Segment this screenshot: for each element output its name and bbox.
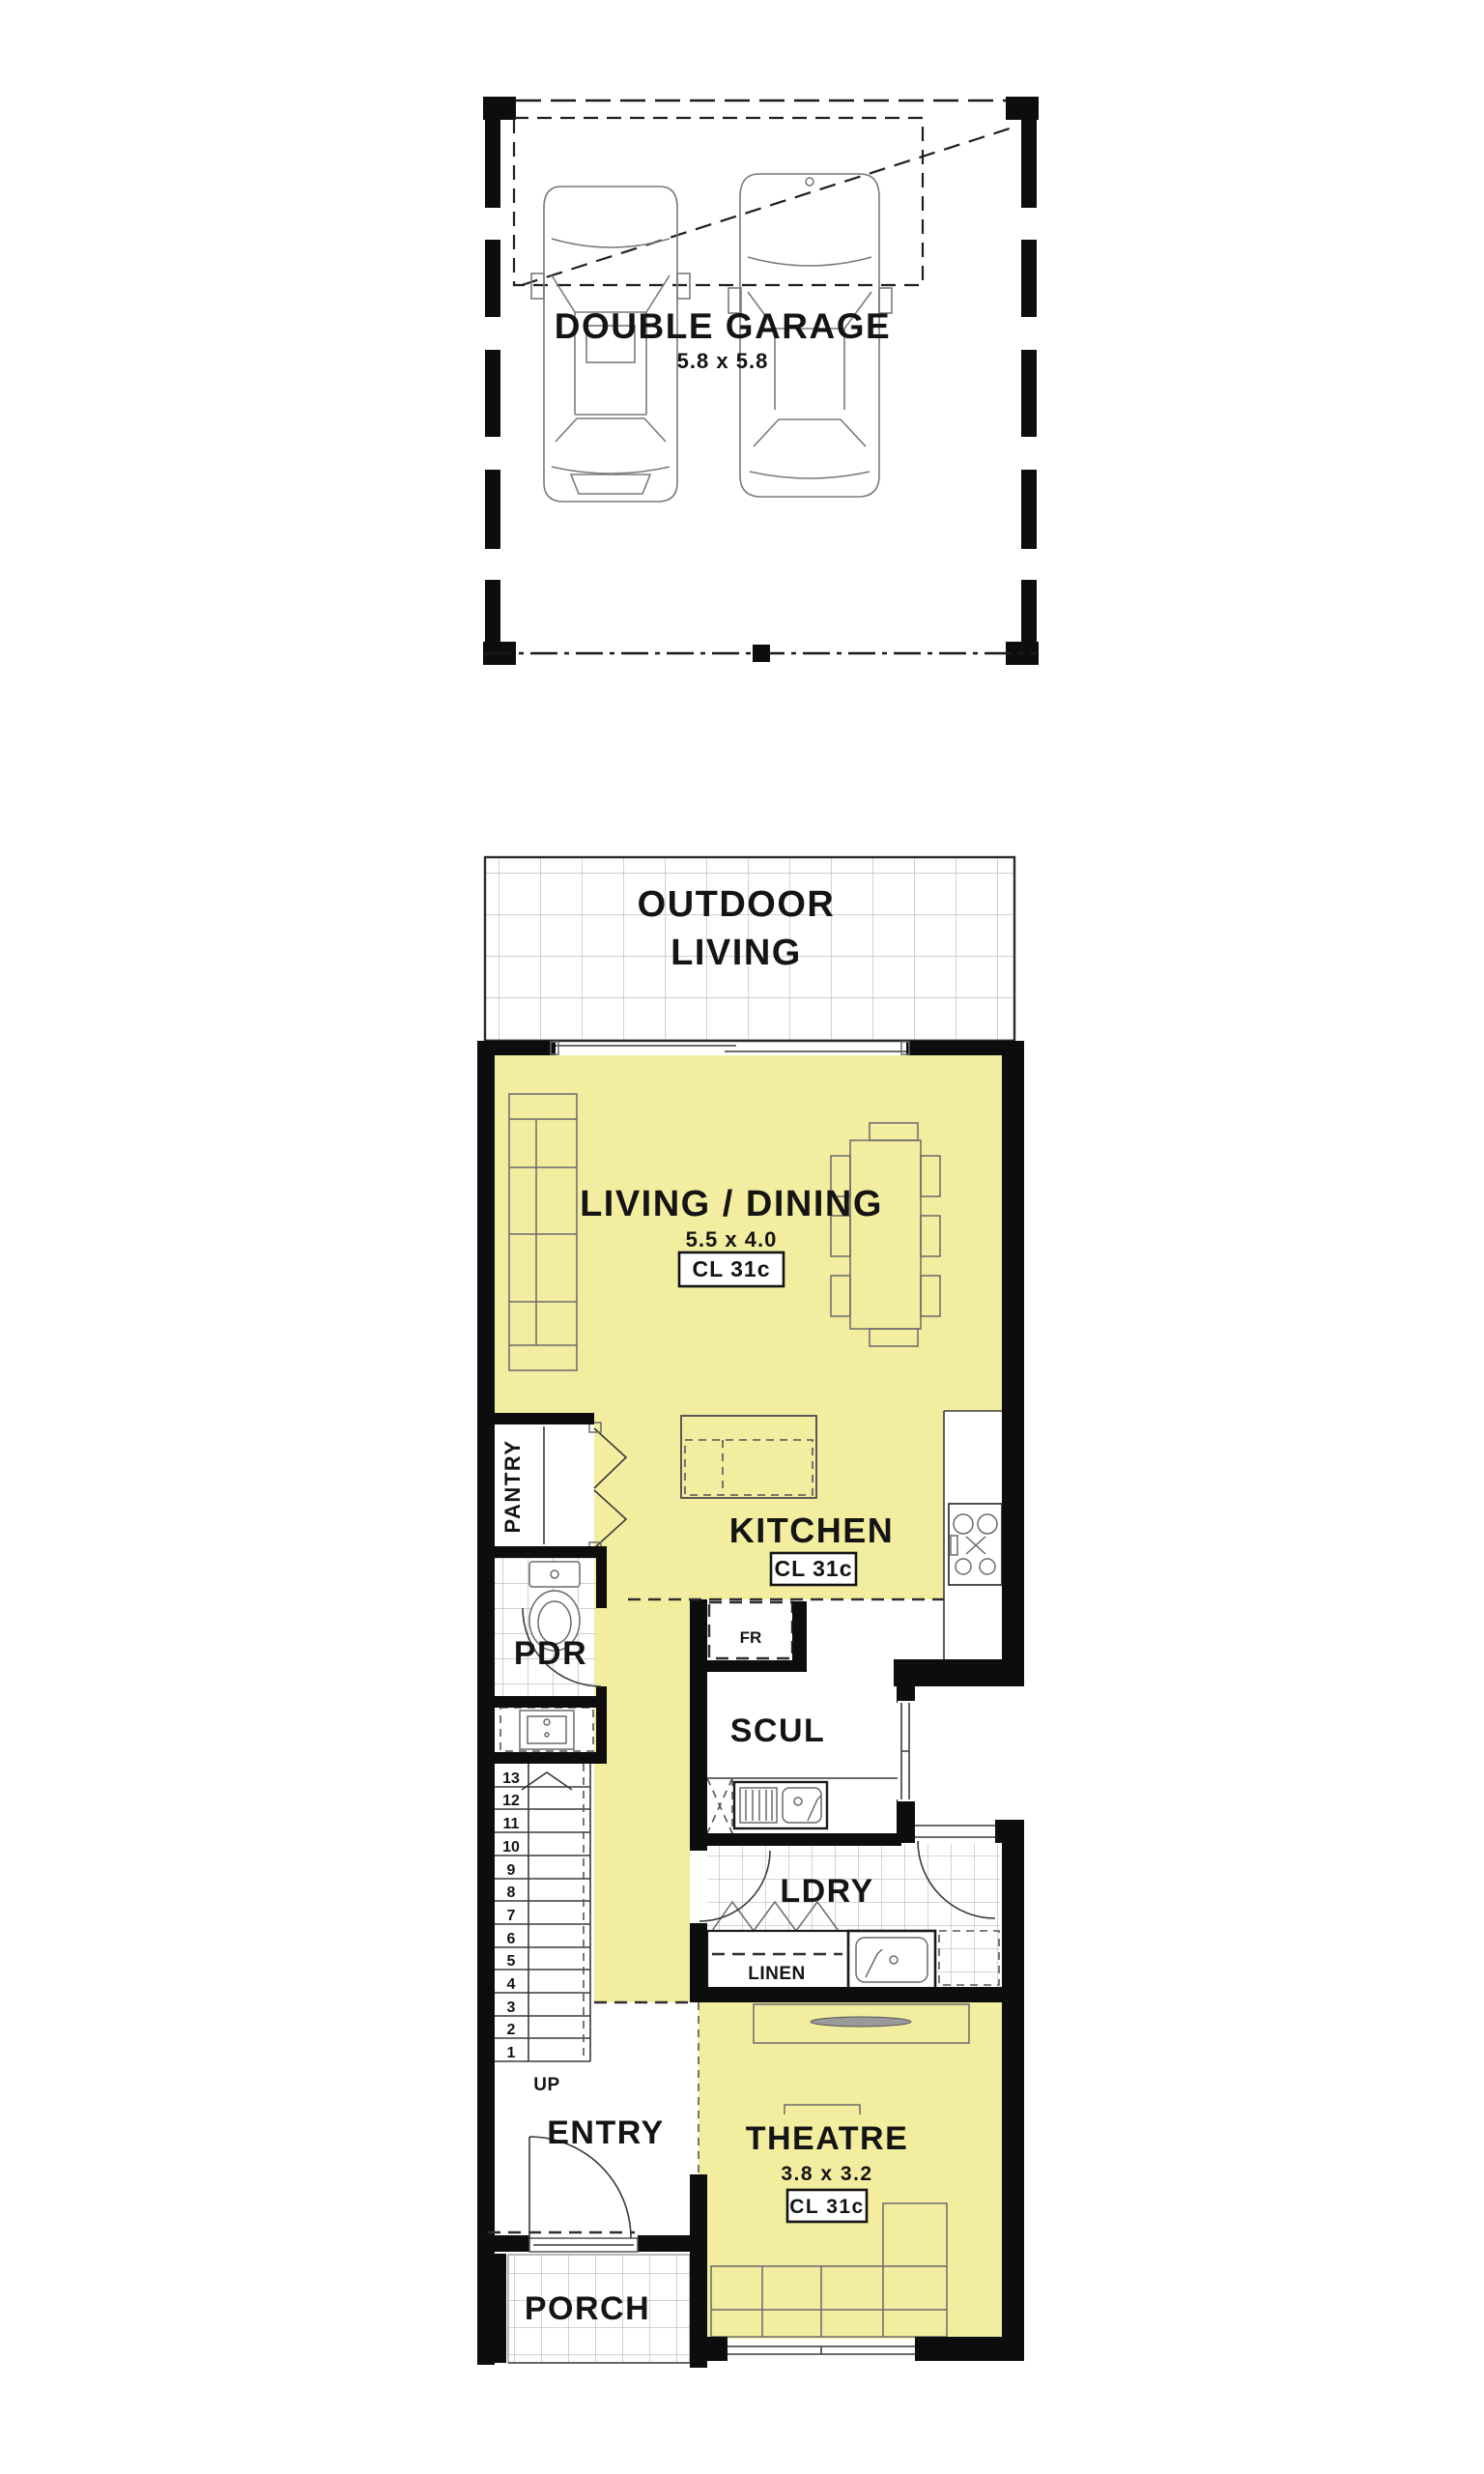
porch-label: PORCH	[525, 2290, 650, 2327]
scul-window	[898, 1701, 915, 1801]
stair-number: 4	[507, 1976, 516, 1993]
theatre-label: THEATRE	[746, 2120, 909, 2157]
outdoor-living-label-line2: LIVING	[671, 933, 802, 973]
living-dining-cl: CL 31c	[692, 1256, 770, 1281]
pdr-label: PDR	[514, 1635, 587, 1672]
stair-number: 1	[507, 2045, 516, 2061]
theatre-cl: CL 31c	[789, 2196, 865, 2218]
entry-label: ENTRY	[547, 2114, 664, 2151]
floor-plan-page: DOUBLE GARAGE 5.8 x 5.8 OUTDOOR LIVING	[0, 0, 1484, 2474]
stair-number: 9	[507, 1862, 516, 1879]
stair-number: 12	[502, 1793, 520, 1809]
kitchen-label: KITCHEN	[729, 1510, 895, 1550]
theatre-dims: 3.8 x 3.2	[781, 2163, 872, 2185]
garage-dims: 5.8 x 5.8	[677, 349, 769, 373]
ground-floor-plan: OUTDOOR LIVING	[477, 857, 1024, 2368]
fridge-label: FR	[740, 1628, 762, 1647]
laundry-tub-icon	[848, 1931, 935, 1996]
stair-number: 6	[507, 1931, 516, 1947]
kitchen-bench	[944, 1411, 1002, 1659]
stair-number: 13	[502, 1770, 520, 1787]
stair-number: 10	[502, 1839, 520, 1855]
staircase: 13 12 11 10 9 8 7 6 5 4 3 2 1 UP	[495, 1764, 590, 2095]
double-sink-icon	[734, 1782, 827, 1828]
floor-plan-drawing: DOUBLE GARAGE 5.8 x 5.8 OUTDOOR LIVING	[0, 0, 1484, 2474]
stair-number: 8	[507, 1884, 516, 1901]
kitchen-cl: CL 31c	[774, 1556, 852, 1581]
stair-number: 3	[507, 1999, 516, 2016]
garage-side-piers	[485, 120, 1037, 642]
stair-number: 2	[507, 2022, 516, 2038]
cooktop-icon	[949, 1504, 1002, 1585]
scul-label: SCUL	[730, 1712, 826, 1749]
stair-number: 5	[507, 1953, 516, 1970]
outdoor-living-label-line1: OUTDOOR	[638, 884, 836, 925]
garage-plan: DOUBLE GARAGE 5.8 x 5.8	[483, 97, 1039, 665]
fridge-space: FR	[709, 1602, 792, 1658]
scullery-bench	[707, 1778, 899, 1833]
pantry-label: PANTRY	[500, 1440, 525, 1534]
stair-number: 7	[507, 1908, 516, 1924]
vanity-icon	[500, 1708, 593, 1751]
garage-label: DOUBLE GARAGE	[555, 306, 891, 346]
room-outdoor-living: OUTDOOR LIVING	[485, 857, 1014, 1041]
tv-icon	[811, 2017, 911, 2027]
ldry-label: LDRY	[780, 1873, 873, 1910]
stairs-up-label: UP	[533, 2075, 559, 2095]
theatre-window	[728, 2339, 915, 2359]
front-door	[488, 2137, 638, 2252]
stair-number: 11	[503, 1816, 520, 1832]
linen-label: LINEN	[748, 1964, 806, 1984]
living-dining-dims: 5.5 x 4.0	[686, 1227, 778, 1251]
sliding-door	[551, 1042, 909, 1054]
living-dining-label: LIVING / DINING	[580, 1184, 883, 1224]
